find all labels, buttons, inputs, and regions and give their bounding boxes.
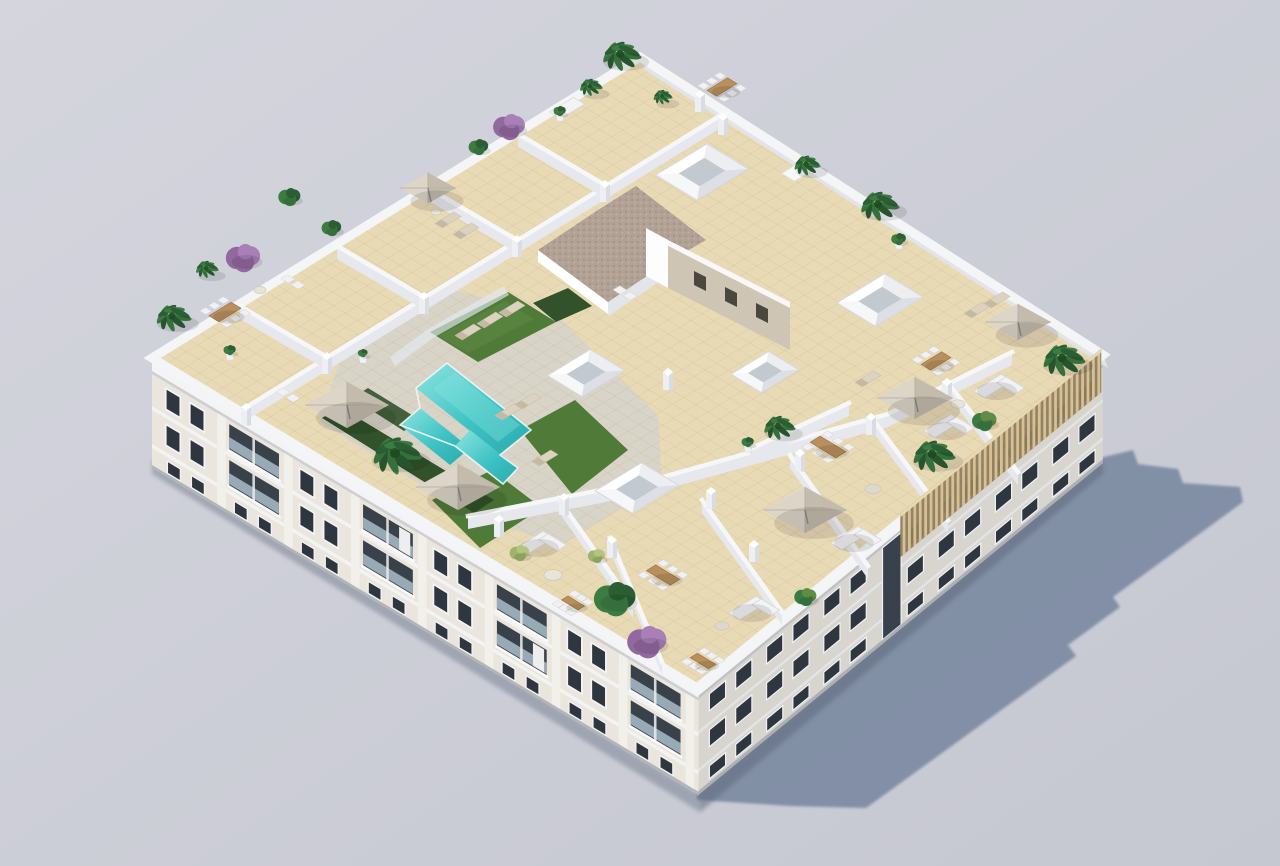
chimney-pillar — [607, 536, 617, 559]
chimney-pillar — [866, 413, 876, 436]
chimney-pillar — [795, 449, 805, 472]
round-table — [254, 286, 266, 293]
pilaster — [284, 453, 293, 550]
rooftop-render — [0, 0, 1280, 866]
chimney-pillar — [718, 113, 728, 136]
pilaster — [686, 693, 695, 790]
chimney-pillar — [749, 540, 759, 563]
chimney-pillar — [706, 487, 716, 510]
round-table — [715, 622, 729, 630]
round-table — [865, 484, 881, 494]
chimney-pillar — [322, 352, 332, 375]
pilaster — [351, 493, 360, 590]
render-canvas — [0, 0, 1280, 866]
pilaster — [418, 533, 427, 630]
round-table — [544, 570, 562, 581]
chimney-pillar — [663, 368, 673, 391]
stair-glazing — [883, 533, 902, 640]
chimney-pillar — [419, 292, 429, 315]
chimney-pillar — [512, 235, 522, 258]
pilaster — [485, 573, 494, 670]
chimney-pillar — [494, 515, 504, 538]
chimney-pillar — [695, 90, 705, 113]
chimney-pillar — [600, 180, 610, 203]
pilaster — [217, 413, 226, 510]
chimney-pillar — [559, 493, 569, 516]
pilaster — [619, 653, 628, 750]
chimney-pillar — [241, 403, 251, 426]
pilaster — [552, 613, 561, 710]
